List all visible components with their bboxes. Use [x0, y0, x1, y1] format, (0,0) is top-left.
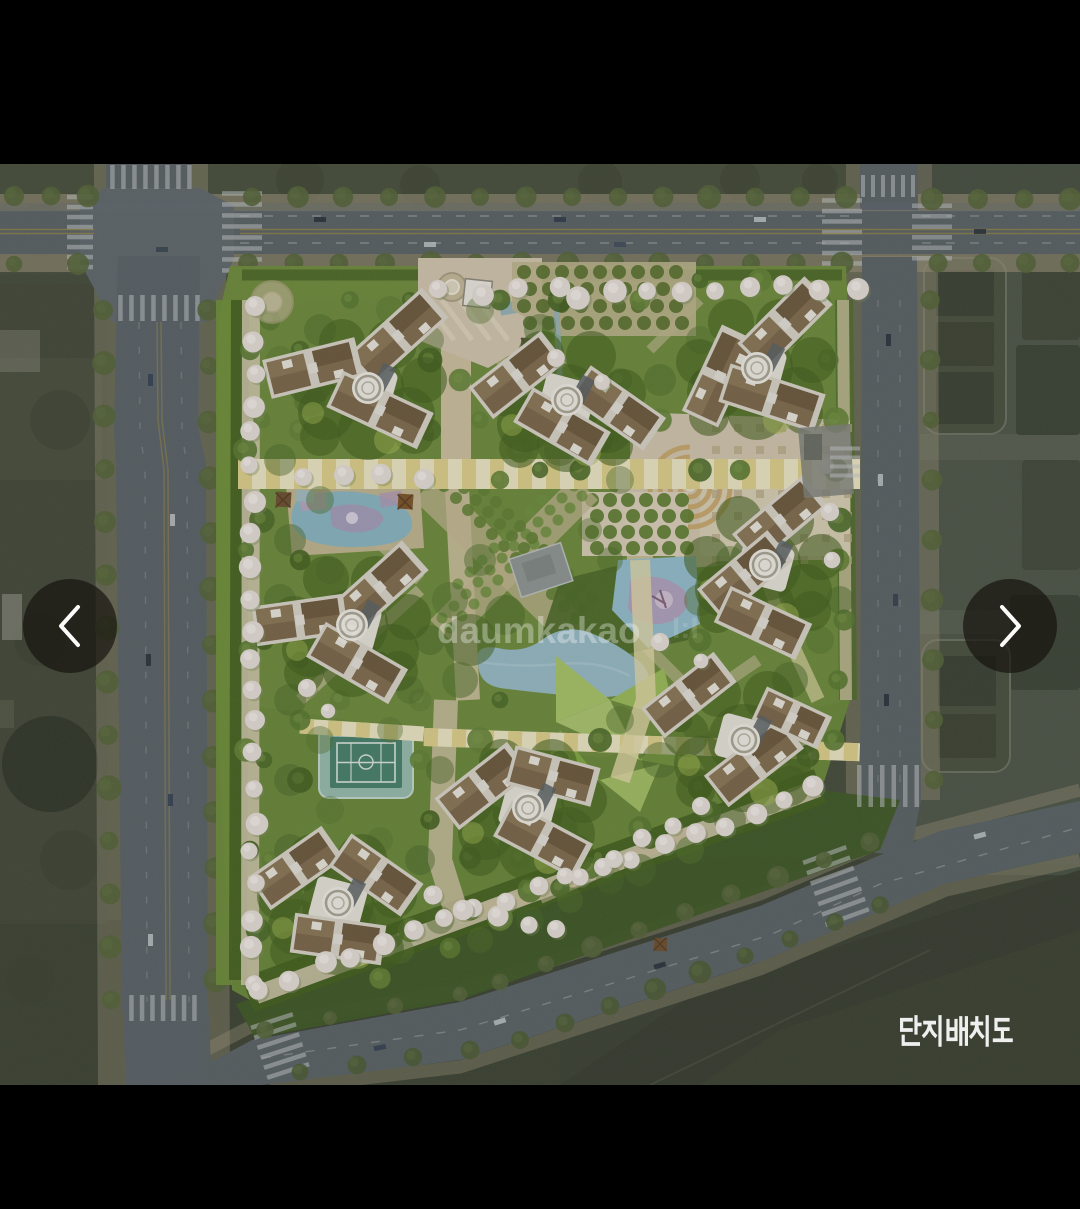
svg-text:5: 5: [336, 606, 359, 652]
svg-text:daumkakao: daumkakao: [437, 610, 641, 651]
svg-text:I:I: I:I: [672, 612, 699, 645]
